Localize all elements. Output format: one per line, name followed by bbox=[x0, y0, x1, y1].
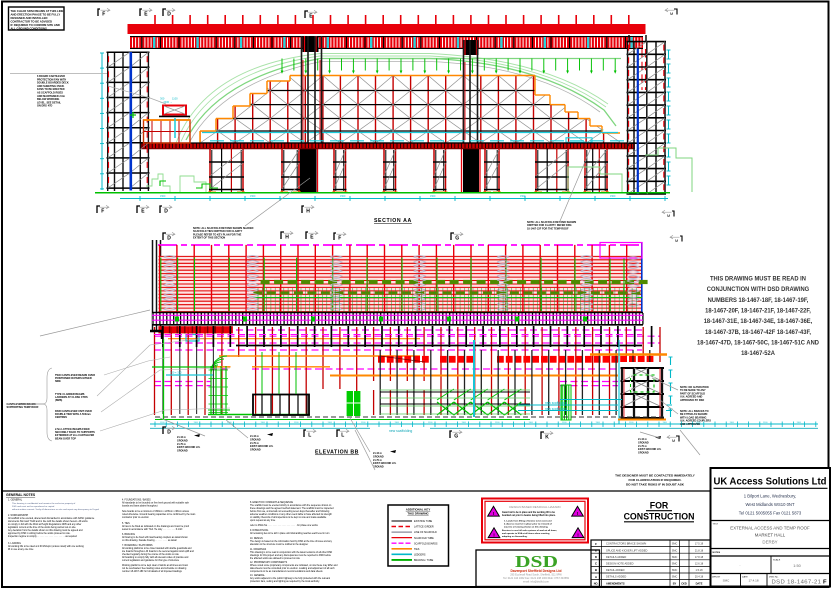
svg-text:boarded out prior to beams bei: boarded out prior to beams being lifted … bbox=[502, 514, 556, 517]
svg-text:M: M bbox=[667, 214, 670, 218]
svg-text:18-1467-47D, 18-1467-50C, 18-1: 18-1467-47D, 18-1467-50C, 18-1467-51C AN… bbox=[697, 339, 819, 346]
svg-text:All ties to be fitted as indic: All ties to be fitted as indicated on th… bbox=[122, 525, 189, 528]
svg-text:TITLE: TITLE bbox=[713, 524, 719, 526]
svg-text:SMC: SMC bbox=[672, 563, 678, 566]
svg-text:All bracing to be fixed with l: All bracing to be fixed with load bearin… bbox=[122, 536, 188, 539]
svg-text:SMC: SMC bbox=[672, 549, 678, 552]
svg-text:tested in accordance with TG4.: tested in accordance with TG4. Tie duty … bbox=[122, 528, 183, 531]
svg-text:DO NOT TAKE RISKS IF IN D: DO NOT TAKE RISKS IF IN DOUBT ASK bbox=[626, 483, 685, 487]
svg-text:AMENDMENTS: AMENDMENTS bbox=[606, 582, 625, 586]
svg-text:F: F bbox=[102, 12, 105, 18]
svg-text:without written consent. Verif: without written consent. Verify all dime… bbox=[12, 508, 100, 511]
svg-text:3. LOADING: 3. LOADING bbox=[8, 542, 21, 545]
svg-text:(BMS): (BMS) bbox=[55, 399, 62, 402]
svg-text:13. GENERAL: 13. GENERAL bbox=[250, 574, 266, 577]
svg-text:18-1467-22F FOR THE TEMP ROOF: 18-1467-22F FOR THE TEMP ROOF bbox=[527, 227, 569, 230]
svg-text:12.6.18: 12.6.18 bbox=[695, 563, 704, 566]
svg-text:adverse weather conditions or: adverse weather conditions or any other … bbox=[250, 513, 333, 516]
svg-text:DATE: DATE bbox=[696, 582, 703, 586]
svg-text:D: D bbox=[167, 430, 171, 436]
svg-text:← 2400 →: ← 2400 → bbox=[160, 100, 173, 104]
svg-text:CKD: CKD bbox=[681, 582, 687, 586]
svg-text:1. Loads from lifting of beam: 1. Loads from lifting of beams to be ass… bbox=[504, 520, 552, 523]
svg-text:LEDGERS: LEDGERS bbox=[414, 553, 426, 556]
svg-text:THE DESIGNER MUST BE CONTACTED: THE DESIGNER MUST BE CONTACTED IMMEDIATE… bbox=[615, 474, 696, 478]
svg-text:8. ERECTION / DISMANTLE SEQU: 8. ERECTION / DISMANTLE SEQUENCE bbox=[250, 501, 293, 504]
svg-text:D: D bbox=[164, 209, 168, 215]
svg-text:documents SG4 and TG20 and in: documents SG4 and TG20 and in line with … bbox=[8, 520, 88, 523]
svg-text:UK Access Solutions Ltd: UK Access Solutions Ltd bbox=[714, 477, 827, 488]
svg-text:before first use, at intervals: before first use, at intervals not excee… bbox=[250, 510, 330, 513]
svg-text:This drawing is to be read in: This drawing is to be read in conjunctio… bbox=[250, 551, 333, 554]
svg-text:legislation current at the tim: legislation current at the time of the w… bbox=[8, 526, 77, 529]
svg-text:GROUND: GROUND bbox=[250, 449, 261, 452]
svg-text:Working platforms to be kept c: Working platforms to be kept clear of de… bbox=[122, 564, 188, 567]
svg-text:and operate to SG4 at all time: and operate to SG4 at all times when ere… bbox=[502, 532, 550, 535]
svg-text:LINE OF SCAFFOLD: LINE OF SCAFFOLD bbox=[414, 531, 437, 534]
svg-text:G: G bbox=[455, 236, 459, 242]
svg-text:21.8.18: 21.8.18 bbox=[695, 549, 704, 552]
svg-text:2. Access must be in place pr: 2. Access must be in place prior to remo… bbox=[504, 522, 552, 525]
svg-text:G: G bbox=[454, 434, 458, 440]
svg-text:All standards to be founded on: All standards to be founded on firm leve… bbox=[122, 502, 190, 505]
svg-text:APPROVED BY DSD: APPROVED BY DSD bbox=[680, 399, 704, 402]
svg-text:new scaffolding: new scaffolding bbox=[545, 407, 567, 411]
svg-text:THIS DRAWING MUST BE READ IN: THIS DRAWING MUST BE READ IN bbox=[710, 275, 806, 282]
svg-text:D: D bbox=[167, 236, 171, 242]
svg-text:12. PROPRIETARY COMPONENTS: 12. PROPRIETARY COMPONENTS bbox=[250, 561, 288, 564]
svg-text:20.4.18: 20.4.18 bbox=[695, 576, 704, 579]
svg-text:GENERAL NOTES: GENERAL NOTES bbox=[6, 493, 36, 497]
svg-text:protection fans, netting and l: protection fans, netting and lighting as… bbox=[250, 580, 320, 583]
svg-text:SPLICE AND KICKER LIFT ADDED: SPLICE AND KICKER LIFT ADDED bbox=[606, 548, 647, 552]
svg-text:DSD 18-1467-21: DSD 18-1467-21 bbox=[772, 580, 822, 586]
svg-text:DERBY: DERBY bbox=[762, 540, 777, 545]
svg-text:E: E bbox=[595, 548, 597, 552]
svg-text:The design is based on the inf: The design is based on the information h… bbox=[250, 540, 333, 543]
svg-text:SCAFFOLD BOARDS: SCAFFOLD BOARDS bbox=[414, 542, 438, 545]
svg-text:alteration to the structure mu: alteration to the structure must be noti… bbox=[250, 543, 308, 546]
svg-text:not be overloaded. See loading: not be overloaded. See loading notes and… bbox=[122, 567, 187, 570]
svg-text:Inspection regime to comply .: Inspection regime to comply . . . . . . … bbox=[8, 535, 78, 538]
svg-text:DESIGN NOTE ADDED: DESIGN NOTE ADDED bbox=[606, 562, 634, 566]
svg-text:DETAILS ADDED: DETAILS ADDED bbox=[606, 575, 626, 579]
svg-text:new scaffolding: new scaffolding bbox=[389, 429, 412, 433]
svg-text:boards and base plates through: boards and base plates throughout bbox=[122, 505, 158, 508]
svg-text:SCAFFOLD TUBE: SCAFFOLD TUBE bbox=[414, 537, 434, 540]
svg-text:This drawing is confidential a: This drawing is confidential and remains… bbox=[12, 502, 76, 505]
svg-text:any ties or bracing shown on t: any ties or bracing shown on this drawin… bbox=[504, 525, 548, 528]
svg-text:M: M bbox=[672, 439, 675, 443]
svg-text:the affected works are allowed: the affected works are allowed to procee… bbox=[250, 557, 301, 560]
svg-text:CONSTRUCTION: CONSTRUCTION bbox=[624, 511, 695, 521]
svg-text:EXTERNAL ACCESS AND TEMP R: EXTERNAL ACCESS AND TEMP ROOF bbox=[730, 526, 810, 531]
svg-text:West Midlands WS10 0NT: West Midlands WS10 0NT bbox=[745, 502, 794, 507]
svg-text:D: D bbox=[167, 12, 171, 18]
svg-text:ALL GROUND CONDITIONS: ALL GROUND CONDITIONS bbox=[11, 27, 47, 31]
svg-text:17.4.18: 17.4.18 bbox=[748, 579, 758, 583]
svg-text:TIES: TIES bbox=[414, 548, 420, 551]
svg-text:SMC: SMC bbox=[723, 579, 731, 583]
svg-text:M: M bbox=[675, 239, 678, 243]
svg-text:DRN BY: DRN BY bbox=[712, 577, 721, 579]
svg-text:SUPPORTING TEMP ROOF: SUPPORTING TEMP ROOF bbox=[7, 406, 40, 409]
svg-text:18-1467-52A: 18-1467-52A bbox=[741, 350, 775, 357]
svg-text:All working lifts to be rated: All working lifts to be rated at 2.00 kN… bbox=[8, 545, 85, 548]
svg-text:Tel 0121 5005055 Fax 0121 58: Tel 0121 5005055 Fax 0121 5873 bbox=[739, 511, 802, 516]
svg-text:IF REQUIRED TO CONFIRM SITE AN: IF REQUIRED TO CONFIRM SITE AND bbox=[11, 23, 60, 27]
svg-text:18-1467-20F, 18-1467-21F, 18-1: 18-1467-20F, 18-1467-21F, 18-1467-22F, bbox=[705, 307, 811, 314]
svg-text:BY: BY bbox=[673, 582, 677, 586]
svg-text:NUMBERS 18-1467-18F, 18-1467-1: NUMBERS 18-1467-18F, 18-1467-19F, bbox=[708, 296, 809, 303]
svg-text:CONTRACTOR TO BE ADVISED: CONTRACTOR TO BE ADVISED bbox=[11, 19, 53, 23]
svg-text:Erectors to use full safe syst: Erectors to use full safe systems of wor… bbox=[502, 529, 557, 532]
svg-text:1. GENERAL: 1. GENERAL bbox=[8, 499, 23, 502]
svg-text:1.5.18: 1.5.18 bbox=[696, 569, 704, 572]
svg-text:FOR: FOR bbox=[650, 501, 669, 511]
svg-text:GROUND: GROUND bbox=[177, 450, 188, 453]
svg-text:DWG No.: DWG No. bbox=[769, 577, 779, 579]
svg-text:F: F bbox=[823, 580, 827, 586]
svg-text:The scaffold must be erected s: The scaffold must be erected strictly in… bbox=[250, 504, 332, 507]
svg-text:upon request at any time: upon request at any time bbox=[250, 519, 276, 522]
svg-text:DESIGNED AND INSTALLED: DESIGNED AND INSTALLED bbox=[11, 16, 48, 20]
svg-text:11. DRAWINGS: 11. DRAWINGS bbox=[250, 548, 267, 551]
svg-text:noted otherwise. Ground bearin: noted otherwise. Ground bearing capaciti… bbox=[122, 513, 196, 516]
svg-text:data sheets must be consulted: data sheets must be consulted prior to e… bbox=[250, 567, 335, 570]
svg-text:All working platforms to be cl: All working platforms to be close boarde… bbox=[122, 547, 192, 550]
svg-text:F: F bbox=[338, 236, 341, 242]
svg-text:components to be as manufactur: components to be as manufacturers recomm… bbox=[250, 570, 323, 573]
svg-text:L: L bbox=[341, 433, 344, 439]
svg-text:1:50: 1:50 bbox=[793, 564, 800, 568]
svg-text:to comply in full with the Wor: to comply in full with the Work at Heigh… bbox=[8, 523, 82, 526]
svg-text:Davenport Sheffield Designs Lt: Davenport Sheffield Designs Ltd bbox=[511, 569, 562, 573]
svg-text:lift in use at any one time: lift in use at any one time bbox=[8, 548, 34, 551]
svg-text:18-1467-31E, 18-1467-34E, 18: 18-1467-31E, 18-1467-34E, 18-1467-36E, bbox=[704, 318, 813, 325]
svg-text:All remaining ties to be left: All remaining ties to be left in place u… bbox=[250, 532, 330, 535]
svg-text:1500: 1500 bbox=[160, 195, 166, 198]
svg-text:number 18-1467-18F for full de: number 18-1467-18F for full details of a… bbox=[122, 570, 183, 573]
svg-text:SMC: SMC bbox=[672, 543, 678, 546]
svg-text:LATTICE GIRDER: LATTICE GIRDER bbox=[414, 526, 434, 529]
svg-text:10. DESIGN: 10. DESIGN bbox=[250, 538, 263, 540]
svg-text:1500: 1500 bbox=[520, 195, 526, 198]
svg-text:drawings for this project and: drawings for this project and any discre… bbox=[250, 554, 332, 557]
svg-text:THIS DRAWING: THIS DRAWING bbox=[407, 511, 429, 515]
svg-text:CENTRES: CENTRES bbox=[55, 416, 67, 419]
svg-text:THE CLEAR SPAN BEAMS AT THIS L: THE CLEAR SPAN BEAMS AT THIS LINE bbox=[11, 9, 64, 13]
svg-text:17.5.19: 17.5.19 bbox=[695, 543, 704, 546]
svg-text:Any works adjacent to the publ: Any works adjacent to the public highway… bbox=[250, 577, 330, 580]
svg-text:GROUND: GROUND bbox=[373, 466, 384, 469]
svg-text:NOTES: NOTES bbox=[713, 552, 721, 554]
svg-text:1100: 1100 bbox=[172, 97, 178, 101]
svg-text:300: 300 bbox=[160, 97, 165, 101]
svg-text:EXTENT OF THIS SECTION: EXTENT OF THIS SECTION bbox=[193, 237, 225, 240]
svg-text:DSD and must not be reproduced: DSD and must not be reproduced or copied bbox=[12, 505, 55, 508]
svg-text:Where noted some proprietary c: Where noted some proprietary components … bbox=[250, 564, 338, 567]
svg-text:or stability. Records of all i: or stability. Records of all inspections… bbox=[250, 516, 327, 519]
svg-text:DATE: DATE bbox=[742, 576, 748, 579]
svg-text:MARKET HALL: MARKET HALL bbox=[755, 533, 786, 538]
svg-text:SECTION AA: SECTION AA bbox=[374, 218, 412, 224]
svg-text:Sole boards to be a minimum of: Sole boards to be a minimum of 450mm x 2… bbox=[122, 510, 190, 513]
svg-text:BRACING / TUBE: BRACING / TUBE bbox=[414, 559, 434, 562]
svg-text:DESIGN BASED RESIDUAL HAZARD: DESIGN BASED RESIDUAL HAZARD bbox=[509, 505, 561, 509]
svg-text:F: F bbox=[595, 542, 597, 546]
svg-text:All scaffold to be erected, al: All scaffold to be erected, altered and … bbox=[8, 517, 95, 520]
svg-text:EXISTING TUBE: EXISTING TUBE bbox=[414, 520, 433, 523]
svg-text:F: F bbox=[101, 209, 104, 215]
svg-text:All boarding to comply fully w: All boarding to comply fully with all re… bbox=[122, 556, 189, 559]
svg-text:Any deviation from the details: Any deviation from the details shown on … bbox=[8, 529, 83, 532]
svg-text:1500: 1500 bbox=[430, 195, 436, 198]
svg-text:17.8.18: 17.8.18 bbox=[695, 556, 704, 559]
svg-text:adapting or dismantling.: adapting or dismantling. bbox=[502, 535, 528, 538]
svg-text:18-1467-37B, 18-1467-42F 18-14: 18-1467-37B, 18-1467-42F 18-1467-43F, bbox=[705, 328, 811, 335]
svg-text:email: info@dsdltd.com: email: info@dsdltd.com bbox=[523, 581, 549, 584]
svg-text:these drawings and the agreed: these drawings and the agreed method sta… bbox=[250, 507, 334, 510]
svg-text:9. DISMANTLING: 9. DISMANTLING bbox=[250, 529, 268, 532]
svg-text:AND ERECTION PHASE TO BE FULLY: AND ERECTION PHASE TO BE FULLY bbox=[11, 12, 61, 16]
svg-text:DETAIL ADDED: DETAIL ADDED bbox=[606, 568, 625, 572]
svg-text:SIDE: SIDE bbox=[55, 380, 61, 383]
svg-text:295 Ecclesall Road South, Shef: 295 Ecclesall Road South, Sheffield, S11… bbox=[510, 574, 562, 577]
svg-text:new scaffolding: new scaffolding bbox=[545, 401, 567, 405]
svg-text:H: H bbox=[306, 209, 310, 215]
svg-text:5. TIES: 5. TIES bbox=[122, 523, 130, 525]
svg-text:1500: 1500 bbox=[250, 195, 256, 198]
svg-text:checked regularly during the c: checked regularly during the course of t… bbox=[122, 553, 180, 556]
svg-text:CONJUNCTION WITH DSD DRAWING: CONJUNCTION WITH DSD DRAWING bbox=[707, 286, 810, 293]
svg-text:ELEVATION BB: ELEVATION BB bbox=[315, 450, 359, 456]
svg-text:DETAILS ADDED: DETAILS ADDED bbox=[606, 555, 626, 559]
svg-text:NO.: NO. bbox=[594, 582, 599, 586]
svg-text:on this drawing. Facade braci: on this drawing. Facade bracing . . . . … bbox=[122, 539, 177, 542]
svg-text:contractor prior to erection: contractor prior to erection bbox=[122, 516, 150, 519]
svg-text:H: H bbox=[285, 235, 289, 241]
svg-text:approved by DSD in writing bef: approved by DSD in writing before the wo… bbox=[8, 532, 71, 535]
svg-text:Guard rail to be in place and: Guard rail to be in place and the workin… bbox=[502, 511, 556, 514]
svg-text:.: . bbox=[740, 563, 741, 567]
svg-text:M: M bbox=[670, 12, 673, 16]
svg-text:6. BRACING: 6. BRACING bbox=[122, 533, 135, 536]
svg-text:K: K bbox=[545, 435, 549, 441]
svg-text:SMC: SMC bbox=[672, 569, 678, 572]
svg-text:1 Bilport Lane, Wednesbury,: 1 Bilport Lane, Wednesbury, bbox=[744, 494, 797, 499]
svg-text:CONTRACTORS BRACE SHOWN: CONTRACTORS BRACE SHOWN bbox=[606, 542, 646, 546]
svg-text:SMC: SMC bbox=[672, 576, 678, 579]
svg-text:SCALE: SCALE bbox=[773, 559, 781, 562]
svg-text:toe boards throughout. All boa: toe boards throughout. All boards to be … bbox=[122, 550, 194, 553]
svg-text:2. WORKMANSHIP: 2. WORKMANSHIP bbox=[8, 514, 29, 517]
svg-text:refer to DWG No . . . . . . .: refer to DWG No . . . . . . . . . . . . … bbox=[250, 524, 319, 527]
svg-text:350 × 350: 350 × 350 bbox=[170, 371, 182, 375]
svg-text:AND APPROVED: AND APPROVED bbox=[680, 423, 700, 426]
svg-text:current legislation and guidan: current legislation and guidance for thi… bbox=[122, 559, 180, 562]
svg-text:4. FOUNDATIONS / BASES: 4. FOUNDATIONS / BASES bbox=[122, 499, 151, 502]
svg-text:7. BOARDING / PLATFORMS: 7. BOARDING / PLATFORMS bbox=[122, 544, 153, 547]
svg-text:1500: 1500 bbox=[340, 195, 346, 198]
svg-text:GROUND: GROUND bbox=[638, 452, 649, 455]
svg-text:SMC: SMC bbox=[672, 556, 678, 559]
svg-text:ON DRG 47D: ON DRG 47D bbox=[37, 105, 52, 108]
svg-text:BEAM OVER TOP: BEAM OVER TOP bbox=[55, 437, 76, 440]
svg-text:L: L bbox=[308, 433, 311, 439]
svg-text:FOR CLARIFICATION IF REQUIRED.: FOR CLARIFICATION IF REQUIRED. bbox=[629, 478, 682, 482]
svg-text:1500: 1500 bbox=[610, 195, 616, 198]
